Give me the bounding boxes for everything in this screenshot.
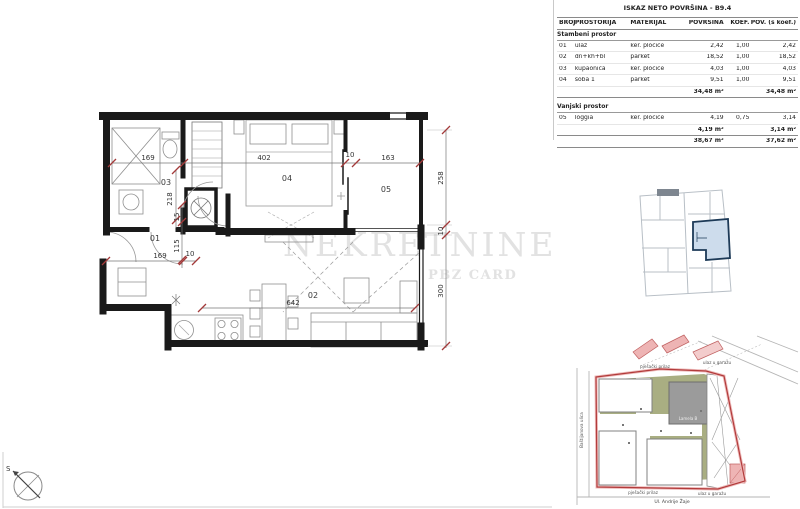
site-label-garage-top: ulaz u garažu xyxy=(703,360,732,365)
dim-right-2: 10 xyxy=(437,227,445,236)
dim-top-3: 10 xyxy=(346,151,355,159)
key-plan-highlighted-unit xyxy=(693,219,730,260)
site-label-street-bottom: Ul. Andrije Žaje xyxy=(654,497,689,505)
cell-material: parket xyxy=(630,77,686,83)
cell-name: ulaz xyxy=(575,43,631,49)
cell-num: 03 xyxy=(557,66,575,72)
site-label-garage-bottom: ulaz u garažu xyxy=(698,491,727,496)
cell-koef: 1,00 xyxy=(724,54,750,60)
col-header-materijal: MATERIJAL xyxy=(630,20,686,26)
sheet-frame xyxy=(3,452,552,508)
section-header: Stambeni prostor xyxy=(557,30,798,41)
dim-left-2: 15 xyxy=(173,213,181,222)
subtotal-area: 4,19 m² xyxy=(686,127,724,133)
dim-top-2: 402 xyxy=(257,154,270,162)
subtotal-row: 34,48 m² 34,48 m² xyxy=(557,87,798,99)
room-label-03: 03 xyxy=(161,178,171,187)
dim-top-4: 163 xyxy=(381,154,394,162)
site-label-street-left: Baštijanova ulica xyxy=(579,412,584,448)
cell-area-koef: 2,42 xyxy=(749,43,798,49)
subtotal-row: 4,19 m² 3,14 m² xyxy=(557,125,798,137)
col-header-broj: BROJ xyxy=(557,20,575,26)
site-label-access-bottom: pješački prilaz xyxy=(628,490,659,495)
cell-material: ker. pločice xyxy=(630,66,686,72)
cell-area: 2,42 xyxy=(686,43,724,49)
cell-area-koef: 9,51 xyxy=(749,77,798,83)
table-row: 04 soba 1 parket 9,51 1,00 9,51 xyxy=(557,75,798,87)
dim-living: 642 xyxy=(286,299,299,307)
cell-koef: 1,00 xyxy=(724,43,750,49)
col-header-prostorija: PROSTORIJA xyxy=(575,20,631,26)
north-arrow-icon: S xyxy=(6,465,42,500)
dim-bottom-2: 10 xyxy=(186,250,195,258)
table-row: 03 kupaonica ker. pločice 4,03 1,00 4,03 xyxy=(557,64,798,76)
cell-koef: 1,00 xyxy=(724,77,750,83)
col-header-koef: KOEF. xyxy=(724,20,750,26)
cell-koef: 0,75 xyxy=(724,115,750,121)
cell-name: kupaonica xyxy=(575,66,631,72)
cell-num: 04 xyxy=(557,77,575,83)
cell-num: 05 xyxy=(557,115,575,121)
room-label-02: 02 xyxy=(308,291,318,300)
room-label-01: 01 xyxy=(150,234,160,243)
cell-name: soba 1 xyxy=(575,77,631,83)
table-row: 05 loggia ker. pločice 4,19 0,75 3,14 xyxy=(557,113,798,125)
area-table: ISKAZ NETO POVRŠINA - B9.4 BROJ PROSTORI… xyxy=(557,1,798,148)
dim-right-1: 258 xyxy=(437,171,445,184)
cell-area: 18,52 xyxy=(686,54,724,60)
north-label: S xyxy=(6,465,11,473)
cell-koef: 1,00 xyxy=(724,66,750,72)
cell-area-koef: 4,03 xyxy=(749,66,798,72)
col-header-povrsina: POVRŠINA xyxy=(686,20,724,26)
dim-left-3: 115 xyxy=(173,239,181,252)
site-label-access-top: pješački prilaz xyxy=(640,364,671,369)
table-row: 01 ulaz ker. pločice 2,42 1,00 2,42 xyxy=(557,41,798,53)
total-area-koef: 37,62 m² xyxy=(749,138,798,144)
total-area: 38,67 m² xyxy=(686,138,724,144)
dim-bottom-1: 169 xyxy=(153,252,166,260)
dim-left-1: 218 xyxy=(166,192,174,205)
table-header-row: BROJ PROSTORIJA MATERIJAL POVRŠINA KOEF.… xyxy=(557,17,798,30)
drawing-sheet: NEKRETNINE PBZ CARD S xyxy=(0,0,800,509)
cell-name: dn+kh+bl xyxy=(575,54,631,60)
col-header-pov-koef: POV. (s koef.) xyxy=(749,20,798,26)
total-row: 38,67 m² 37,62 m² xyxy=(557,136,798,148)
table-row: 02 dn+kh+bl parket 18,52 1,00 18,52 xyxy=(557,52,798,64)
dim-right-3: 300 xyxy=(437,284,445,297)
room-label-04: 04 xyxy=(282,174,292,183)
site-plan: pješački prilaz ulaz u garažu pješački p… xyxy=(577,335,798,505)
cell-name: loggia xyxy=(575,115,631,121)
cell-num: 01 xyxy=(557,43,575,49)
table-title: ISKAZ NETO POVRŠINA - B9.4 xyxy=(557,1,798,17)
cell-area-koef: 3,14 xyxy=(749,115,798,121)
subtotal-area-koef: 3,14 m² xyxy=(749,127,798,133)
subtotal-area: 34,48 m² xyxy=(686,89,724,95)
watermark-pbz-card: PBZ CARD xyxy=(428,268,517,283)
cell-material: ker. pločice xyxy=(630,43,686,49)
section-header: Vanjski prostor xyxy=(557,102,798,113)
cell-material: parket xyxy=(630,54,686,60)
site-label-lamela-b: Lamela B xyxy=(679,416,698,421)
cell-area-koef: 18,52 xyxy=(749,54,798,60)
cell-area: 4,19 xyxy=(686,115,724,121)
panel-divider xyxy=(553,0,554,140)
cell-num: 02 xyxy=(557,54,575,60)
cell-area: 9,51 xyxy=(686,77,724,83)
cell-area: 4,03 xyxy=(686,66,724,72)
cell-material: ker. pločice xyxy=(630,115,686,121)
room-label-05: 05 xyxy=(381,185,391,194)
key-plan xyxy=(640,189,731,296)
subtotal-area-koef: 34,48 m² xyxy=(749,89,798,95)
dim-top-1: 169 xyxy=(141,154,154,162)
